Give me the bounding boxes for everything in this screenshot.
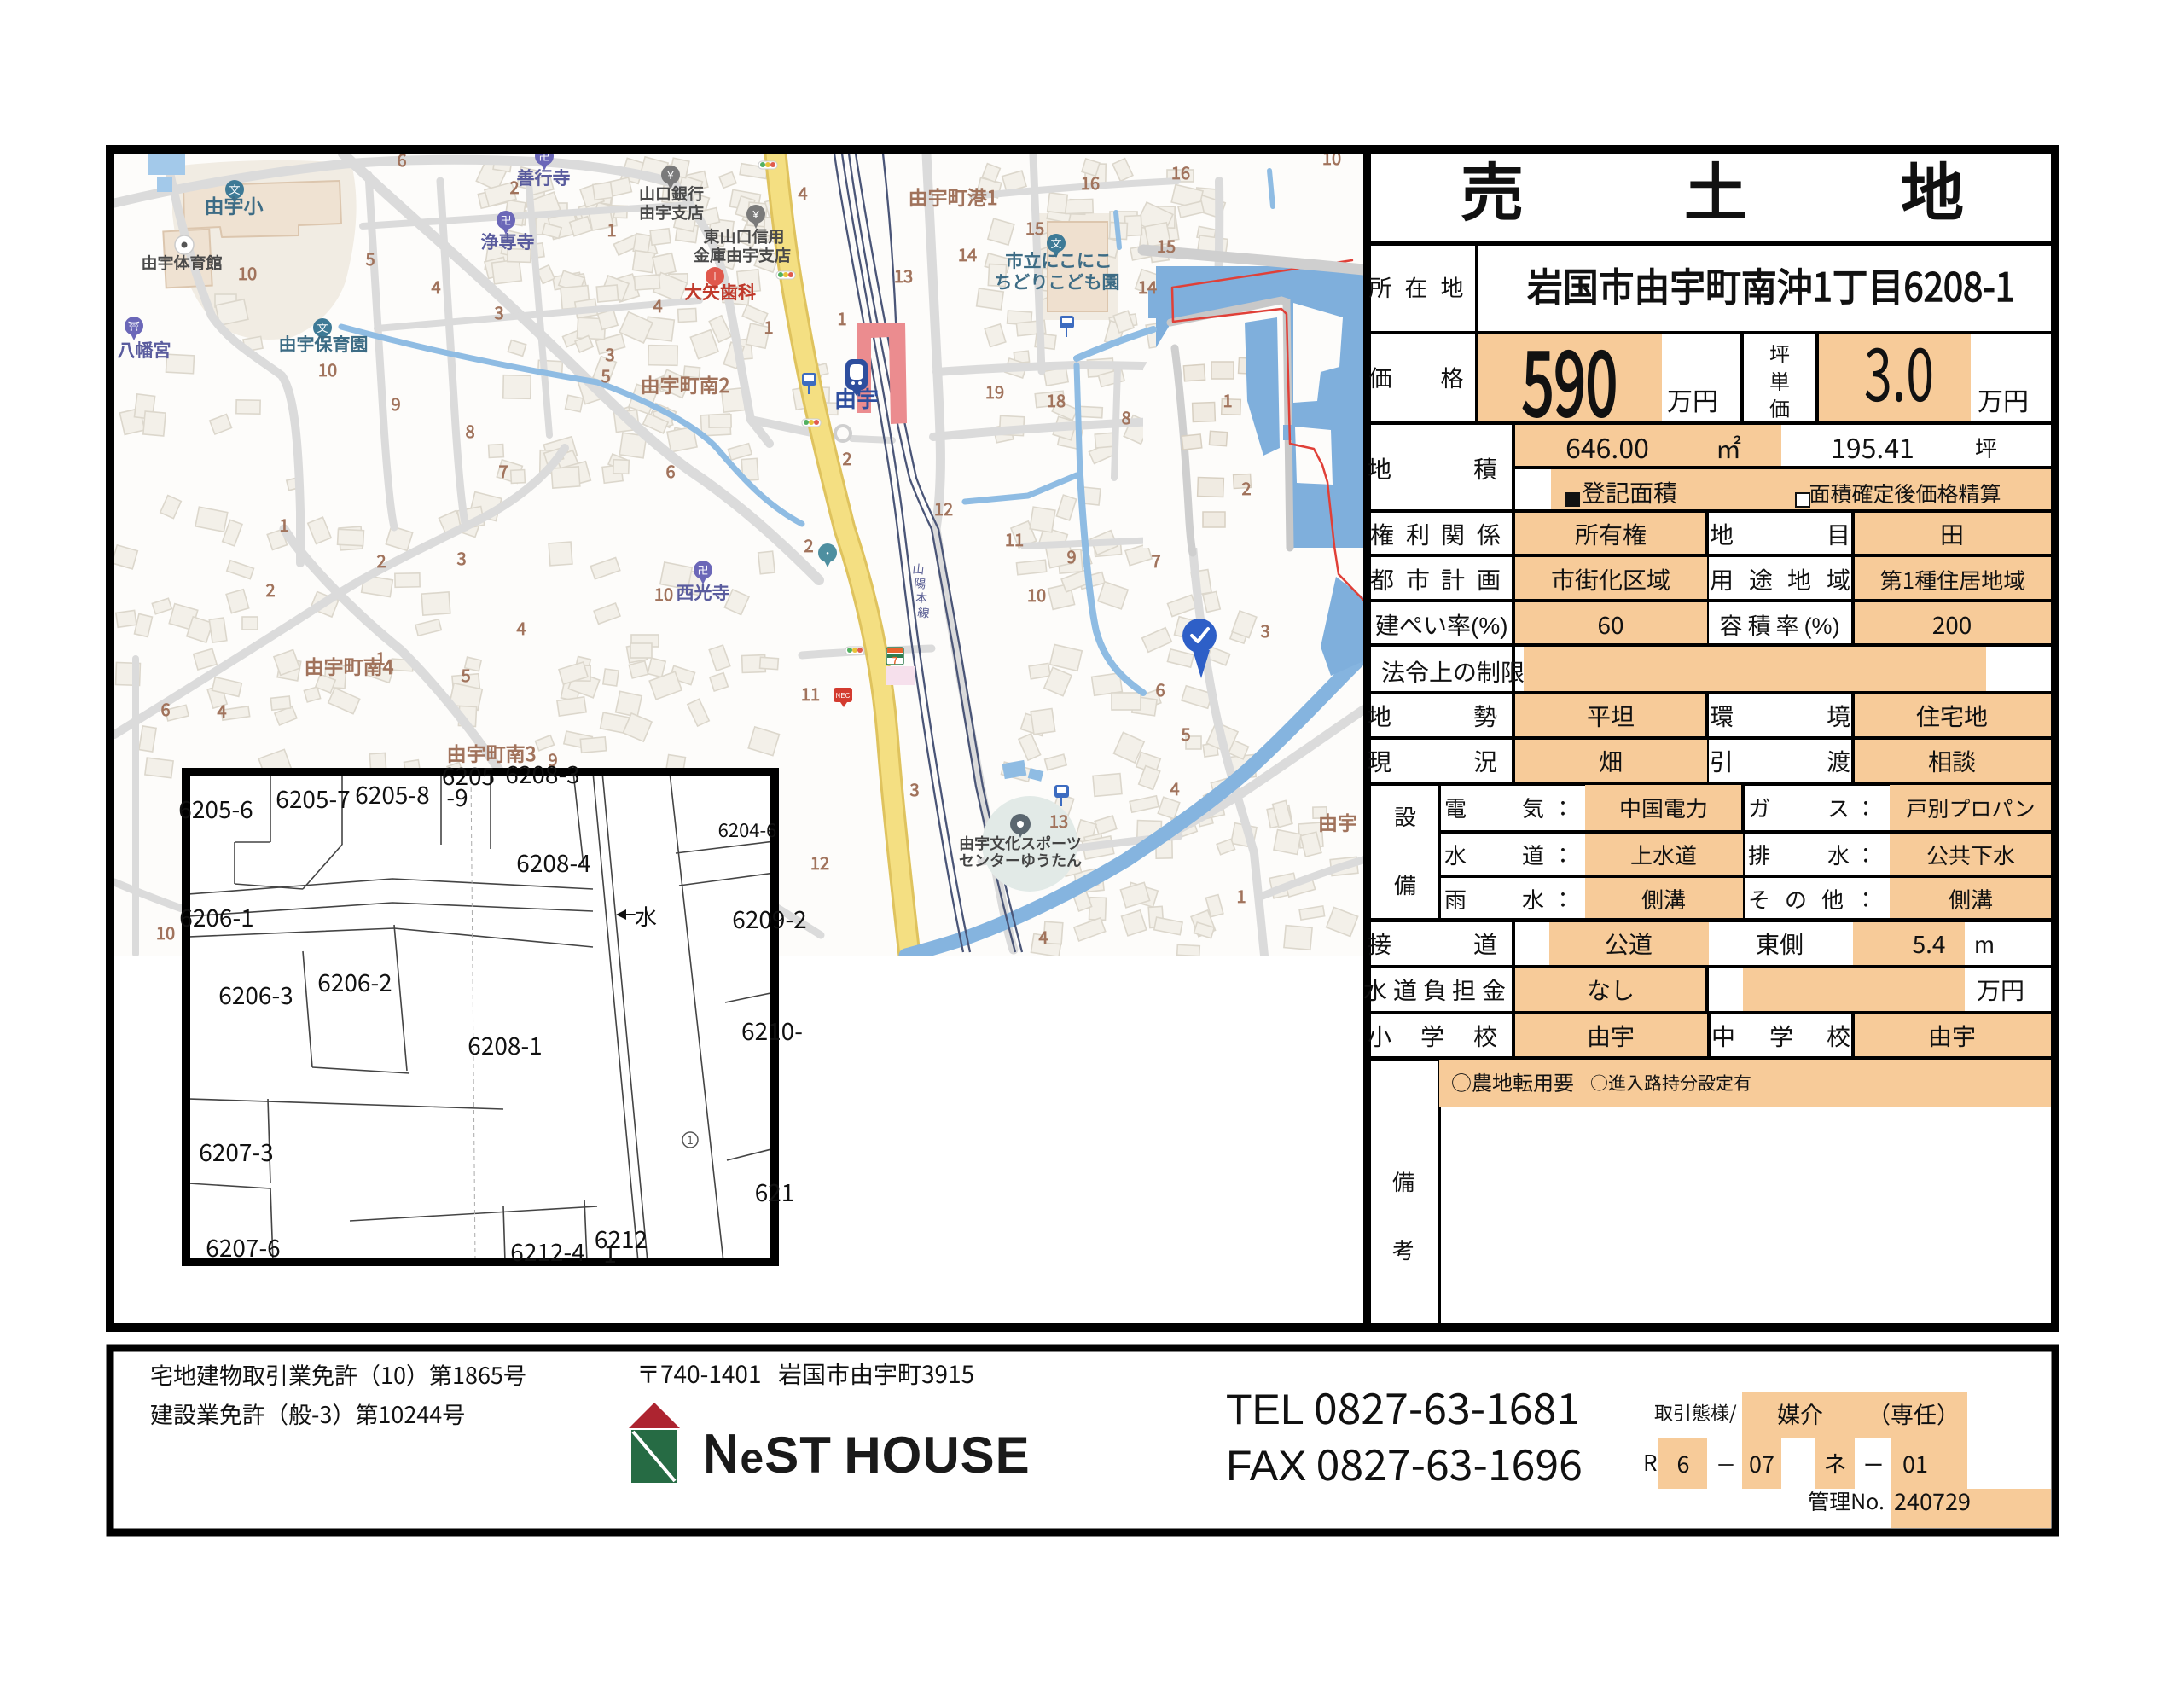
svg-text:負: 負: [1423, 973, 1447, 1007]
svg-text:7: 7: [498, 458, 508, 483]
svg-text:621: 621: [755, 1175, 795, 1209]
svg-text:6: 6: [1155, 677, 1165, 701]
svg-text:200: 200: [1932, 607, 1972, 642]
svg-text:6: 6: [160, 696, 170, 721]
svg-text:容 積 率 (%): 容 積 率 (%): [1719, 607, 1839, 641]
svg-text:万円: 万円: [1977, 973, 2024, 1007]
svg-text:2: 2: [265, 577, 275, 601]
svg-text:担: 担: [1452, 973, 1476, 1007]
svg-text:2: 2: [509, 174, 519, 199]
svg-text:ー: ー: [1863, 1449, 1884, 1479]
svg-text:現: 現: [1368, 744, 1391, 778]
svg-text:4: 4: [1170, 776, 1179, 800]
svg-text:10: 10: [156, 920, 175, 944]
svg-text:地: 地: [1441, 270, 1464, 303]
svg-text:ネ: ネ: [1824, 1446, 1847, 1479]
svg-text:m: m: [1974, 927, 1994, 961]
svg-text:排: 排: [1748, 839, 1770, 870]
svg-text:浄専寺: 浄専寺: [481, 229, 535, 254]
svg-text:なし: なし: [1587, 973, 1635, 1007]
svg-text:13: 13: [1049, 808, 1068, 833]
svg-text:2: 2: [804, 532, 813, 557]
svg-text:14: 14: [958, 241, 977, 266]
svg-text:5: 5: [461, 662, 470, 687]
svg-text:ちどりこども園: ちどりこども園: [995, 269, 1120, 294]
svg-text:学: 学: [1420, 1019, 1444, 1053]
svg-text:13: 13: [894, 263, 913, 288]
svg-text:16: 16: [1171, 160, 1190, 184]
svg-text:6208-3: 6208-3: [505, 757, 579, 791]
svg-text:格: 格: [1441, 360, 1464, 393]
svg-text:㎡: ㎡: [1716, 428, 1741, 466]
svg-text:大矢歯科: 大矢歯科: [684, 279, 756, 305]
svg-text:由宇町港1: 由宇町港1: [909, 182, 998, 211]
svg-text:8: 8: [1121, 404, 1130, 429]
svg-text:地: 地: [1901, 142, 1964, 234]
svg-text:坪: 坪: [1975, 432, 1997, 463]
svg-text:4: 4: [653, 293, 662, 317]
svg-text:3: 3: [456, 545, 466, 570]
svg-text:在: 在: [1405, 270, 1428, 303]
svg-text:設: 設: [1394, 800, 1416, 832]
svg-text:4: 4: [431, 274, 440, 299]
svg-text:計: 計: [1441, 562, 1465, 596]
svg-text:6204-6: 6204-6: [718, 816, 777, 843]
svg-text:備: 備: [1394, 869, 1416, 900]
svg-text:4: 4: [798, 180, 807, 205]
svg-text:気: 気: [1522, 792, 1544, 823]
svg-text:平坦: 平坦: [1587, 699, 1635, 733]
svg-text:5: 5: [601, 363, 610, 387]
svg-text:側溝: 側溝: [1641, 883, 1686, 915]
svg-text:中: 中: [1711, 1019, 1735, 1053]
svg-text:6206-3: 6206-3: [218, 978, 293, 1012]
svg-text:画: 画: [1477, 562, 1501, 596]
svg-text:畑: 畑: [1599, 744, 1623, 778]
svg-text:側溝: 側溝: [1949, 883, 1993, 915]
svg-text:の: の: [1785, 883, 1807, 915]
svg-text:6: 6: [665, 458, 675, 483]
svg-text:地: 地: [1710, 517, 1734, 551]
svg-text:1: 1: [607, 217, 616, 241]
svg-text:途: 途: [1749, 562, 1773, 596]
svg-text:由宇支店: 由宇支店: [639, 200, 704, 224]
svg-text:万円: 万円: [1978, 381, 2029, 418]
svg-text:登記面積: 登記面積: [1582, 475, 1677, 509]
svg-text:利: 利: [1406, 517, 1430, 551]
svg-text:8: 8: [465, 418, 474, 443]
svg-text:1: 1: [1223, 387, 1232, 412]
svg-text:195.41: 195.41: [1831, 427, 1914, 467]
svg-text:地: 地: [1368, 699, 1391, 733]
svg-text:宅地建物取引業免許（10）第1865号: 宅地建物取引業免許（10）第1865号: [150, 1357, 526, 1391]
svg-text:面積確定後価格精算: 面積確定後価格精算: [1809, 478, 2001, 508]
svg-text:田: 田: [1940, 517, 1964, 551]
svg-text:6208-4: 6208-4: [516, 845, 590, 880]
svg-text:10: 10: [238, 260, 257, 285]
svg-text:電: 電: [1444, 792, 1467, 823]
svg-text:善行寺: 善行寺: [517, 165, 571, 190]
svg-text:管理No.: 管理No.: [1808, 1485, 1885, 1516]
svg-text:-9: -9: [446, 780, 468, 814]
svg-text:1: 1: [687, 1131, 693, 1148]
svg-text:中国電力: 中国電力: [1619, 792, 1708, 823]
svg-text:上水道: 上水道: [1630, 839, 1697, 870]
svg-text:7: 7: [1151, 548, 1160, 572]
svg-text:10: 10: [654, 581, 673, 606]
svg-text:道: 道: [1473, 927, 1497, 961]
svg-text:1: 1: [1236, 883, 1246, 908]
svg-text:由宇: 由宇: [1318, 807, 1357, 836]
svg-text:⛩: ⛩: [128, 319, 140, 333]
svg-text:●: ●: [826, 549, 829, 556]
svg-text:R: R: [1643, 1446, 1658, 1478]
svg-text:道: 道: [1522, 839, 1544, 870]
svg-text:1: 1: [279, 512, 288, 537]
svg-text:八幡宮: 八幡宮: [118, 337, 171, 363]
svg-text:取引態様/: 取引態様/: [1654, 1398, 1737, 1426]
svg-text:6206-2: 6206-2: [317, 965, 392, 999]
svg-text:由宇保育園: 由宇保育園: [279, 331, 369, 357]
svg-text:4: 4: [516, 615, 526, 640]
svg-text:5: 5: [365, 246, 375, 270]
svg-text:FAX 0827-63-1696: FAX 0827-63-1696: [1226, 1432, 1583, 1493]
svg-text:ス: ス: [1827, 792, 1850, 823]
svg-text:価: 価: [1769, 392, 1790, 422]
svg-text:東側: 東側: [1756, 927, 1804, 961]
svg-text:：: ：: [1552, 792, 1574, 823]
svg-text:住宅地: 住宅地: [1916, 699, 1988, 733]
svg-text:12: 12: [810, 850, 829, 875]
svg-text:関: 関: [1441, 517, 1465, 551]
svg-text:6208-1: 6208-1: [468, 1028, 542, 1062]
svg-text:学: 学: [1769, 1019, 1793, 1053]
svg-text:6209-2: 6209-2: [732, 902, 806, 936]
svg-text:積: 積: [1473, 451, 1497, 485]
svg-text:岩国市由宇町3915: 岩国市由宇町3915: [778, 1357, 974, 1391]
svg-text:○農地転用要: ○農地転用要: [1451, 1066, 1574, 1096]
svg-text:卍: 卍: [697, 561, 708, 578]
svg-text:相談: 相談: [1928, 744, 1976, 778]
svg-text:所: 所: [1369, 270, 1392, 303]
svg-text:3: 3: [494, 299, 503, 324]
svg-text:由宇: 由宇: [834, 382, 879, 414]
svg-text:2: 2: [842, 445, 851, 470]
svg-text:6207-6: 6207-6: [206, 1230, 280, 1264]
svg-text:公道: 公道: [1605, 927, 1653, 961]
svg-text:備: 備: [1392, 1165, 1414, 1197]
svg-text:道: 道: [1393, 973, 1417, 1007]
svg-text:水: 水: [1363, 973, 1387, 1007]
svg-text:目: 目: [1827, 517, 1850, 551]
svg-text:（専任）: （専任）: [1867, 1397, 1960, 1430]
svg-text:〒740-1401: 〒740-1401: [636, 1357, 762, 1391]
svg-text:1: 1: [837, 305, 846, 330]
svg-text:60: 60: [1597, 607, 1623, 642]
svg-text:¥: ¥: [666, 166, 674, 183]
svg-text:－: －: [1716, 1449, 1736, 1479]
svg-text:6207-3: 6207-3: [199, 1135, 273, 1169]
svg-text:TEL 0827-63-1681: TEL 0827-63-1681: [1226, 1375, 1580, 1437]
svg-text:6206-1: 6206-1: [179, 900, 253, 934]
svg-text:4: 4: [217, 698, 226, 723]
svg-text:由宇: 由宇: [1587, 1019, 1635, 1053]
svg-text:6212-4: 6212-4: [510, 1235, 584, 1269]
svg-text:12: 12: [934, 496, 953, 520]
svg-text:線: 線: [917, 603, 931, 621]
svg-text:1: 1: [375, 645, 385, 670]
svg-text:：: ：: [1855, 792, 1877, 823]
svg-text:10: 10: [1027, 582, 1046, 607]
svg-text:地: 地: [1787, 562, 1811, 596]
svg-text:由宇町南2: 由宇町南2: [641, 369, 730, 398]
svg-text:建ぺい率(%): 建ぺい率(%): [1375, 607, 1508, 642]
svg-text:水: 水: [635, 900, 657, 932]
svg-text:水: 水: [1827, 839, 1850, 870]
svg-text:4: 4: [1038, 924, 1048, 949]
svg-text:域: 域: [1827, 562, 1850, 596]
svg-text:雨: 雨: [1444, 883, 1467, 915]
svg-text:所有権: 所有権: [1575, 517, 1647, 551]
svg-text:公共下水: 公共下水: [1926, 839, 2015, 870]
svg-text:：: ：: [1855, 883, 1877, 915]
svg-text:：: ：: [1552, 839, 1574, 870]
svg-text:6205-8: 6205-8: [355, 777, 429, 811]
svg-text:土: 土: [1684, 142, 1747, 234]
svg-text:由宇: 由宇: [1928, 1019, 1976, 1053]
svg-text:況: 況: [1473, 744, 1497, 778]
svg-text:由宇小: 由宇小: [205, 190, 264, 219]
svg-text:9: 9: [391, 391, 400, 415]
svg-text:引: 引: [1710, 744, 1734, 778]
svg-text:2: 2: [376, 548, 386, 572]
svg-text:そ: そ: [1748, 883, 1770, 915]
svg-text:法令上の制限: 法令上の制限: [1381, 654, 1525, 689]
svg-text:校: 校: [1827, 1019, 1850, 1053]
svg-text:他: 他: [1821, 883, 1844, 915]
svg-text:：: ：: [1552, 883, 1574, 915]
svg-text:1: 1: [764, 314, 773, 339]
svg-text:19: 19: [985, 379, 1004, 404]
svg-text:媒介: 媒介: [1777, 1397, 1823, 1430]
svg-text:センターゆうたん: センターゆうたん: [959, 849, 1082, 871]
svg-text:建設業免許（般-3）第10244号: 建設業免許（般-3）第10244号: [150, 1397, 465, 1430]
svg-text:240729: 240729: [1894, 1484, 1971, 1517]
svg-text:15: 15: [1157, 233, 1176, 258]
svg-text:5: 5: [1181, 721, 1190, 746]
svg-text:7: 7: [892, 654, 897, 667]
svg-text:9: 9: [1066, 543, 1076, 568]
svg-text:3.0: 3.0: [1864, 316, 1934, 422]
svg-text:：: ：: [1855, 839, 1877, 870]
svg-text:11: 11: [801, 681, 820, 706]
svg-text:646.00: 646.00: [1565, 427, 1649, 467]
svg-text:西光寺: 西光寺: [677, 579, 730, 605]
svg-text:○進入路持分設定有: ○進入路持分設定有: [1590, 1070, 1751, 1095]
svg-text:坪: 坪: [1769, 338, 1790, 368]
svg-text:ガ: ガ: [1748, 792, 1770, 823]
svg-text:売: 売: [1461, 142, 1524, 234]
svg-text:地: 地: [1368, 451, 1391, 485]
svg-text:水: 水: [1444, 839, 1467, 870]
svg-text:万円: 万円: [1667, 381, 1718, 418]
svg-text:勢: 勢: [1473, 699, 1497, 733]
svg-text:NEC: NEC: [836, 691, 851, 700]
svg-text:渡: 渡: [1827, 744, 1850, 778]
svg-text:18: 18: [1047, 387, 1066, 412]
svg-text:価: 価: [1369, 360, 1392, 393]
svg-text:戸別プロパン: 戸別プロパン: [1906, 793, 2035, 823]
svg-text:6205-6: 6205-6: [178, 792, 253, 826]
svg-text:NeST HOUSE: NeST HOUSE: [702, 1414, 1031, 1488]
svg-text:金: 金: [1482, 973, 1506, 1007]
svg-text:11: 11: [1005, 526, 1024, 551]
svg-text:小: 小: [1368, 1019, 1391, 1053]
svg-text:6: 6: [1677, 1446, 1690, 1479]
svg-text:第1種住居地域: 第1種住居地域: [1880, 564, 2025, 596]
svg-text:接: 接: [1368, 927, 1391, 961]
svg-text:単: 単: [1769, 365, 1790, 395]
svg-text:用: 用: [1710, 562, 1734, 596]
svg-text:境: 境: [1827, 699, 1850, 733]
svg-text:金庫由宇支店: 金庫由宇支店: [694, 243, 791, 266]
svg-text:6205-7: 6205-7: [276, 782, 350, 816]
svg-text:水: 水: [1522, 883, 1544, 915]
svg-text:1: 1: [603, 1236, 617, 1270]
svg-text:¥: ¥: [752, 206, 759, 222]
svg-text:岩国市由宇町南沖1丁目6208-1: 岩国市由宇町南沖1丁目6208-1: [1527, 257, 2015, 313]
svg-text:3: 3: [1260, 618, 1269, 642]
svg-text:係: 係: [1477, 517, 1501, 551]
svg-text:卍: 卍: [500, 212, 511, 228]
svg-text:市: 市: [1406, 562, 1430, 596]
svg-text:15: 15: [1025, 215, 1044, 240]
svg-text:07: 07: [1749, 1446, 1774, 1479]
svg-text:考: 考: [1392, 1234, 1414, 1265]
svg-text:由宇体育館: 由宇体育館: [141, 251, 222, 274]
svg-text:市街化区域: 市街化区域: [1551, 562, 1670, 596]
svg-text:10: 10: [318, 357, 337, 381]
svg-text:3: 3: [909, 776, 919, 801]
svg-text:14: 14: [1138, 274, 1157, 299]
svg-text:権: 権: [1370, 517, 1394, 551]
svg-text:5.4: 5.4: [1913, 927, 1946, 961]
svg-text:校: 校: [1473, 1019, 1497, 1053]
svg-text:6210-: 6210-: [741, 1014, 803, 1048]
svg-text:環: 環: [1710, 699, 1734, 733]
svg-text:16: 16: [1081, 170, 1100, 195]
svg-text:01: 01: [1902, 1446, 1928, 1479]
svg-text:都: 都: [1370, 562, 1394, 596]
svg-text:2: 2: [1241, 475, 1251, 500]
